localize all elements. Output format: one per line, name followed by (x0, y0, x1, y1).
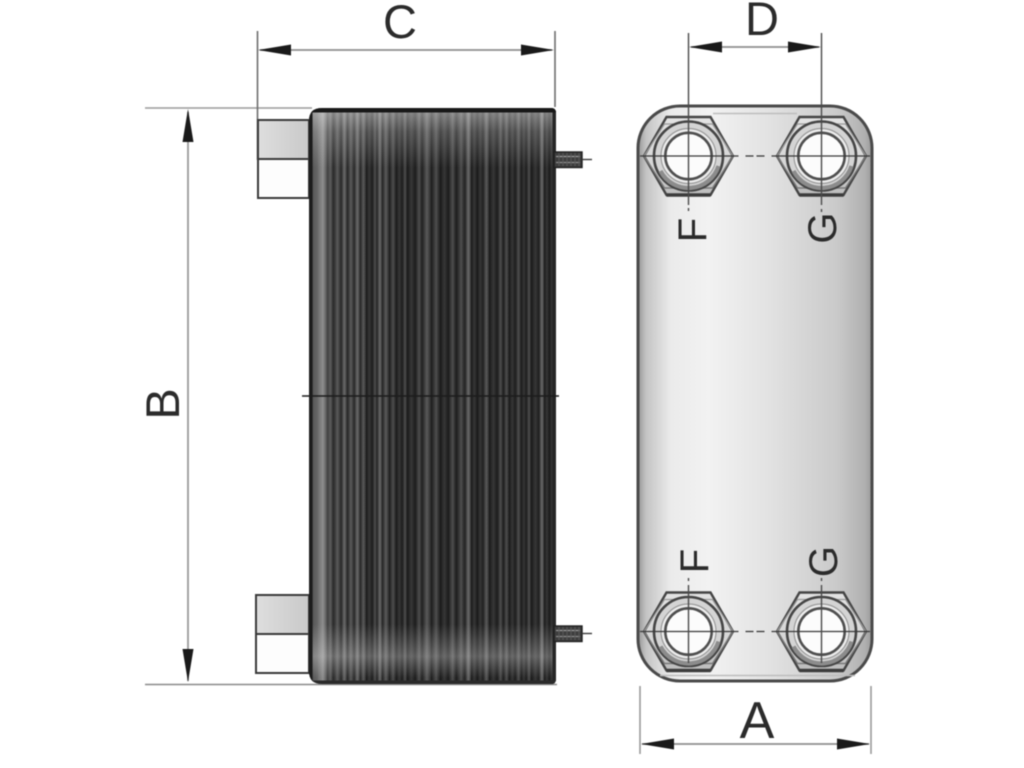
svg-text:B: B (136, 388, 189, 419)
svg-text:D: D (745, 0, 779, 45)
svg-text:A: A (740, 692, 775, 750)
svg-text:G: G (802, 546, 846, 577)
svg-text:F: F (671, 218, 715, 242)
svg-text:F: F (673, 549, 717, 573)
svg-text:C: C (383, 0, 417, 48)
svg-text:G: G (801, 212, 845, 243)
